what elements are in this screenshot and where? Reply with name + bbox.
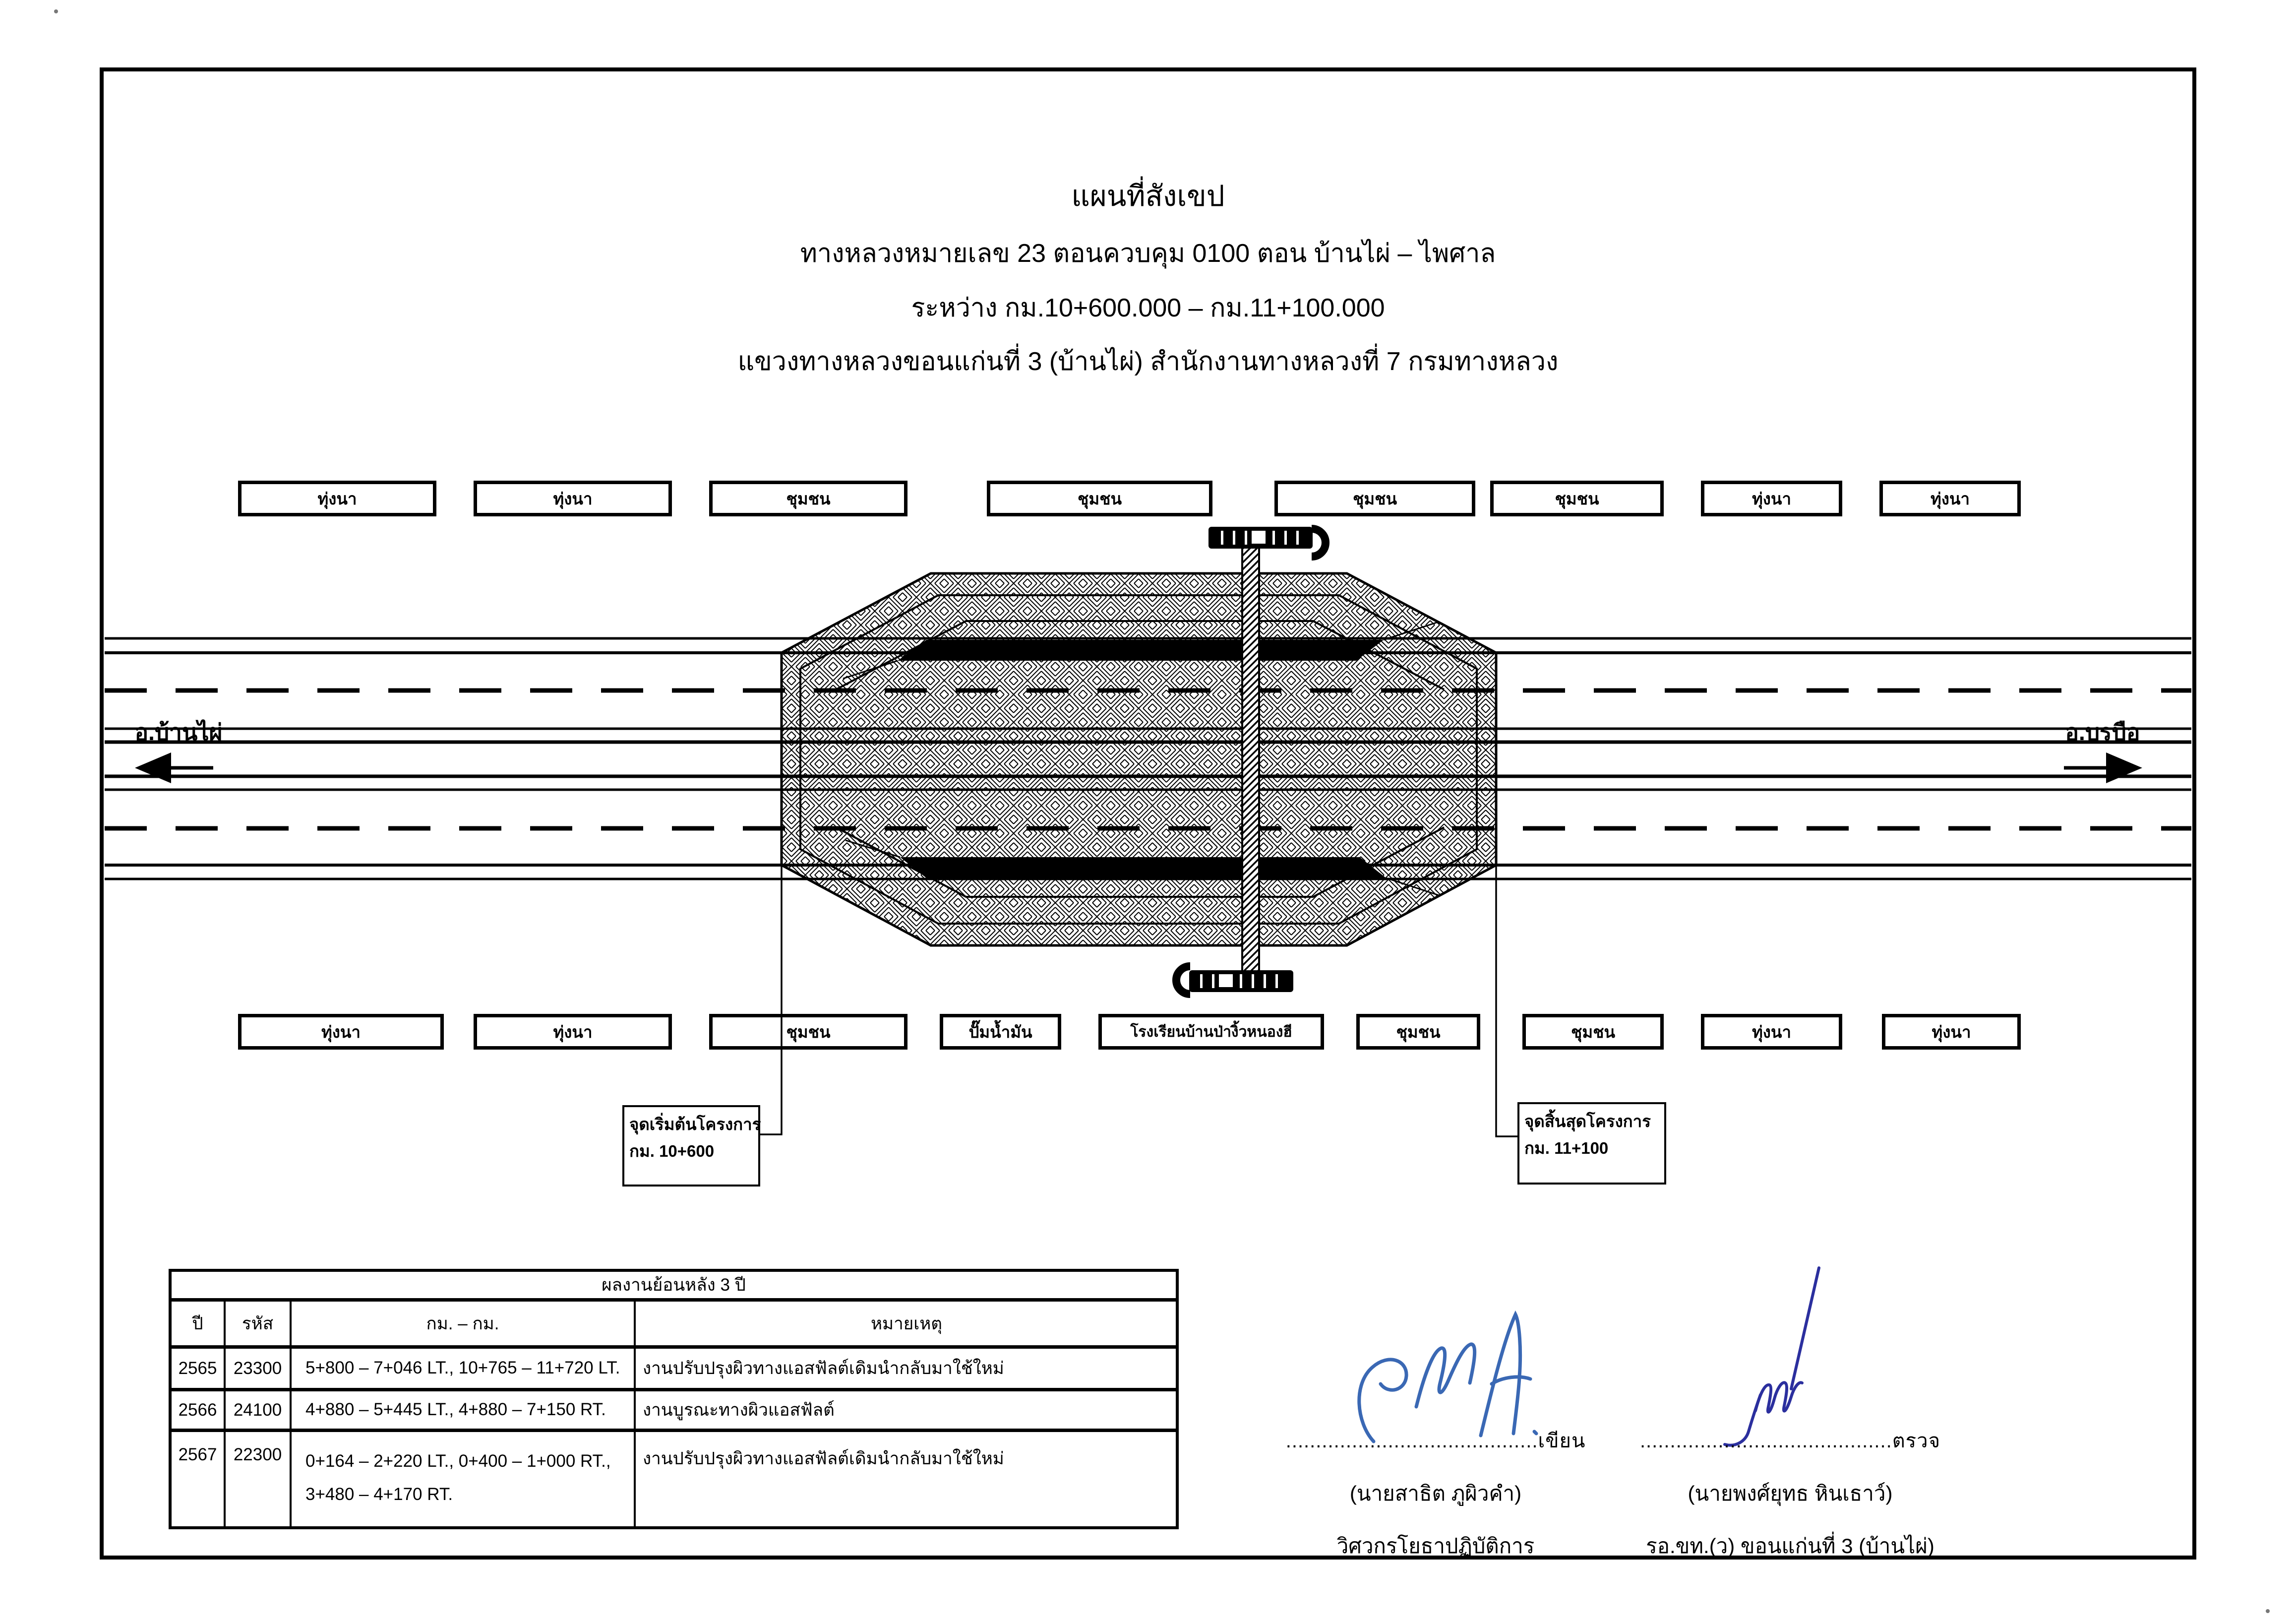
- writer-sign-line: ........................................…: [1269, 1425, 1602, 1456]
- land-use-box-top-8: ทุ่งนา: [1879, 481, 2021, 516]
- land-use-box-top-6: ชุมชน: [1490, 481, 1664, 516]
- district-line: แขวงทางหลวงขอนแก่นที่ 3 (บ้านไผ่) สำนักง…: [0, 340, 2296, 381]
- crossing-side-road: [1242, 527, 1259, 991]
- land-use-label: ทุ่งนา: [553, 486, 593, 512]
- dotted-line: ........................................…: [1286, 1430, 1538, 1452]
- cell-year: 2567: [172, 1432, 226, 1526]
- project-area-hatch: [782, 573, 1496, 945]
- corner-artifact-dot-bottom: [2266, 1609, 2270, 1613]
- corner-artifact-dot-top: [54, 9, 58, 13]
- cell-note: งานปรับปรุงผิวทางแอสฟัลต์เดิมนำกลับมาใช้…: [636, 1349, 1177, 1391]
- land-use-label: ชุมชน: [1396, 1019, 1440, 1045]
- land-use-box-top-3: ชุมชน: [709, 481, 907, 516]
- inspector-signature: [1725, 1268, 1819, 1445]
- land-use-label: ชุมชน: [1571, 1019, 1615, 1045]
- writer-role: วิศวกรโยธาปฏิบัติการ: [1269, 1530, 1602, 1562]
- land-use-box-top-5: ชุมชน: [1274, 481, 1475, 516]
- land-use-box-bottom-9: ทุ่งนา: [1882, 1014, 2021, 1050]
- inspector-label: ตรวจ: [1892, 1430, 1940, 1452]
- km-range-line: ระหว่าง กม.10+600.000 – กม.11+100.000: [0, 287, 2296, 328]
- col-header-year: ปี: [172, 1302, 226, 1349]
- arrow-right-icon: [2064, 752, 2142, 783]
- land-use-label: ชุมชน: [1353, 486, 1397, 512]
- cell-note: งานปรับปรุงผิวทางแอสฟัลต์เดิมนำกลับมาใช้…: [636, 1432, 1177, 1526]
- col-header-note: หมายเหตุ: [636, 1302, 1177, 1349]
- history-table-title: ผลงานย้อนหลัง 3 ปี: [172, 1272, 1176, 1302]
- land-use-label: ชุมชน: [786, 1019, 830, 1045]
- school-label: โรงเรียนบ้านป่างิ้วหนองฮี: [1130, 1020, 1292, 1044]
- land-use-label: ทุ่งนา: [318, 486, 357, 512]
- dotted-line: ........................................…: [1640, 1430, 1892, 1452]
- end-callout-text: จุดสิ้นสุดโครงการ: [1524, 1108, 1659, 1135]
- land-use-box-bottom-6: ชุมชน: [1356, 1014, 1480, 1050]
- land-use-box-bottom-8: ทุ่งนา: [1701, 1014, 1842, 1050]
- gas-station-box: ปั๊มน้ำมัน: [940, 1014, 1061, 1050]
- land-use-box-top-7: ทุ่งนา: [1701, 481, 1842, 516]
- land-use-box-top-1: ทุ่งนา: [238, 481, 436, 516]
- cell-code: 24100: [226, 1391, 292, 1432]
- inspector-signature-block: ........................................…: [1617, 1425, 1964, 1562]
- land-use-label: ชุมชน: [1078, 486, 1122, 512]
- history-table: ผลงานย้อนหลัง 3 ปี ปี รหัส กม. – กม. หมา…: [169, 1269, 1179, 1529]
- crossing-symbol-bottom: [1176, 966, 1293, 994]
- land-use-label: ทุ่งนา: [1752, 486, 1791, 512]
- land-use-label: ชุมชน: [786, 486, 830, 512]
- page-title: แผนที่สังเขป: [0, 173, 2296, 219]
- table-row: 2567 22300 0+164 – 2+220 LT., 0+400 – 1+…: [172, 1432, 1176, 1526]
- inspector-role: รอ.ขท.(ว) ขอนแก่นที่ 3 (บ้านไผ่): [1617, 1530, 1964, 1562]
- destination-left: อ.บ้านไผ่: [114, 714, 243, 750]
- inspector-sign-line: ........................................…: [1617, 1425, 1964, 1456]
- land-use-box-bottom-3: ชุมชน: [709, 1014, 907, 1050]
- end-callout-km: กม. 11+100: [1524, 1135, 1659, 1162]
- writer-signature-block: ........................................…: [1269, 1425, 1602, 1562]
- start-callout-text: จุดเริ่มต้นโครงการ: [629, 1111, 753, 1138]
- cell-km: 4+880 – 5+445 LT., 4+880 – 7+150 RT.: [292, 1391, 636, 1432]
- land-use-box-bottom-1: ทุ่งนา: [238, 1014, 444, 1050]
- cell-code: 22300: [226, 1432, 292, 1526]
- table-row: 2565 23300 5+800 – 7+046 LT., 10+765 – 1…: [172, 1349, 1176, 1391]
- land-use-label: ทุ่งนา: [321, 1019, 361, 1045]
- project-end-callout: จุดสิ้นสุดโครงการ กม. 11+100: [1517, 1102, 1666, 1185]
- cell-note: งานบูรณะทางผิวแอสฟัลต์: [636, 1391, 1177, 1432]
- destination-right: อ.บรบือ: [2038, 714, 2167, 750]
- land-use-box-bottom-7: ชุมชน: [1522, 1014, 1664, 1050]
- land-use-label: ทุ่งนา: [1752, 1019, 1791, 1045]
- sketch-map-page: แผนที่สังเขป ทางหลวงหมายเลข 23 ตอนควบคุม…: [0, 0, 2296, 1624]
- cell-code: 23300: [226, 1349, 292, 1391]
- cell-year: 2565: [172, 1349, 226, 1391]
- col-header-km: กม. – กม.: [292, 1302, 636, 1349]
- inspector-name: (นายพงศ์ยุทธ หินเธาว์): [1617, 1477, 1964, 1510]
- land-use-label: ทุ่งนา: [1932, 1019, 1971, 1045]
- cell-km: 0+164 – 2+220 LT., 0+400 – 1+000 RT., 3+…: [292, 1432, 636, 1526]
- table-row: 2566 24100 4+880 – 5+445 LT., 4+880 – 7+…: [172, 1391, 1176, 1432]
- crossing-symbol-top: [1208, 527, 1326, 557]
- start-point-leader-line: [760, 865, 782, 1134]
- cell-km: 5+800 – 7+046 LT., 10+765 – 11+720 LT.: [292, 1349, 636, 1391]
- school-box: โรงเรียนบ้านป่างิ้วหนองฮี: [1098, 1014, 1324, 1050]
- col-header-code: รหัส: [226, 1302, 292, 1349]
- land-use-box-bottom-2: ทุ่งนา: [474, 1014, 672, 1050]
- writer-signature: [1359, 1314, 1536, 1441]
- writer-name: (นายสาธิต ภูผิวคำ): [1269, 1477, 1602, 1510]
- arrow-left-icon: [135, 752, 213, 783]
- start-callout-km: กม. 10+600: [629, 1138, 753, 1165]
- history-table-header-row: ปี รหัส กม. – กม. หมายเหตุ: [172, 1302, 1176, 1349]
- highway-line: ทางหลวงหมายเลข 23 ตอนควบคุม 0100 ตอน บ้า…: [0, 232, 2296, 273]
- cell-year: 2566: [172, 1391, 226, 1432]
- gas-station-label: ปั๊มน้ำมัน: [968, 1019, 1032, 1045]
- land-use-label: ทุ่งนา: [1931, 486, 1970, 512]
- project-start-callout: จุดเริ่มต้นโครงการ กม. 10+600: [622, 1105, 760, 1187]
- land-use-label: ทุ่งนา: [553, 1019, 593, 1045]
- land-use-box-top-4: ชุมชน: [987, 481, 1212, 516]
- land-use-box-top-2: ทุ่งนา: [474, 481, 672, 516]
- end-point-leader-line: [1496, 865, 1517, 1136]
- land-use-label: ชุมชน: [1555, 486, 1599, 512]
- writer-label: เขียน: [1538, 1430, 1585, 1452]
